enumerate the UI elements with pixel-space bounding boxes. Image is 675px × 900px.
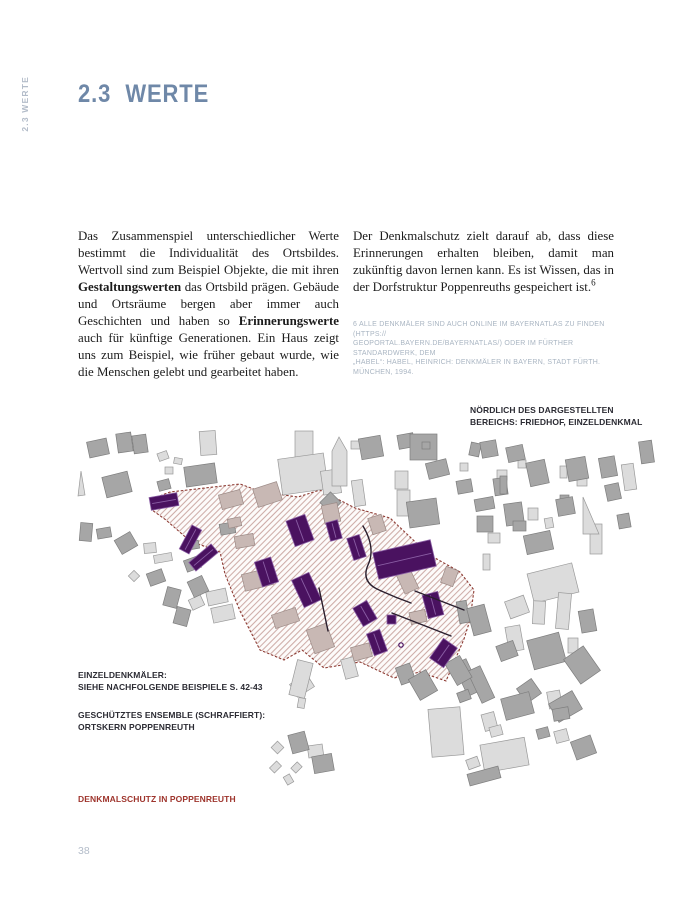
legend-monuments: EINZELDENKMÄLER: SIEHE NACHFOLGENDE BEIS… xyxy=(78,669,263,693)
footnote-line: „HABEL“: HABEL, HEINRICH: DENKMÄLER IN B… xyxy=(353,358,614,377)
section-number: 2.3 xyxy=(78,80,111,109)
map-note-north-line2: BEREICHS: FRIEDHOF, EINZELDENKMAL xyxy=(470,416,642,428)
footnote-line: 6 ALLE DENKMÄLER SIND AUCH ONLINE IM BAY… xyxy=(353,320,614,339)
map-note-north: NÖRDLICH DES DARGESTELLTEN BEREICHS: FRI… xyxy=(470,404,642,428)
legend-monuments-line2: SIEHE NACHFOLGENDE BEISPIELE S. 42-43 xyxy=(78,681,263,693)
monument-protection-map xyxy=(70,424,655,796)
body-paragraph-right: Der Denkmalschutz zielt darauf ab, dass … xyxy=(353,228,614,296)
page-number: 38 xyxy=(78,845,90,857)
legend-ensemble-line2: ORTSKERN POPPENREUTH xyxy=(78,721,265,733)
body-text-columns: Das Zusammenspiel unterschiedlicher Wert… xyxy=(78,228,614,381)
map-note-north-line1: NÖRDLICH DES DARGESTELLTEN xyxy=(470,404,642,416)
section-heading: 2.3 WERTE xyxy=(78,80,209,109)
footnote-line: GEOPORTAL.BAYERN.DE/BAYERNATLAS/) ODER I… xyxy=(353,339,614,358)
section-title: WERTE xyxy=(125,80,209,109)
document-page: 2.3 WERTE 2.3 WERTE Das Zusammenspiel un… xyxy=(0,0,675,900)
legend-monuments-line1: EINZELDENKMÄLER: xyxy=(78,669,263,681)
legend-ensemble-line1: GESCHÜTZTES ENSEMBLE (SCHRAFFIERT): xyxy=(78,709,265,721)
legend-ensemble: GESCHÜTZTES ENSEMBLE (SCHRAFFIERT): ORTS… xyxy=(78,709,265,733)
page-margin-vertical-label: 2.3 WERTE xyxy=(20,76,30,132)
footnote: 6 ALLE DENKMÄLER SIND AUCH ONLINE IM BAY… xyxy=(353,320,614,377)
map-caption: DENKMALSCHUTZ IN POPPENREUTH xyxy=(78,793,236,805)
body-column-right: Der Denkmalschutz zielt darauf ab, dass … xyxy=(353,228,614,381)
body-column-left: Das Zusammenspiel unterschiedlicher Wert… xyxy=(78,228,339,381)
